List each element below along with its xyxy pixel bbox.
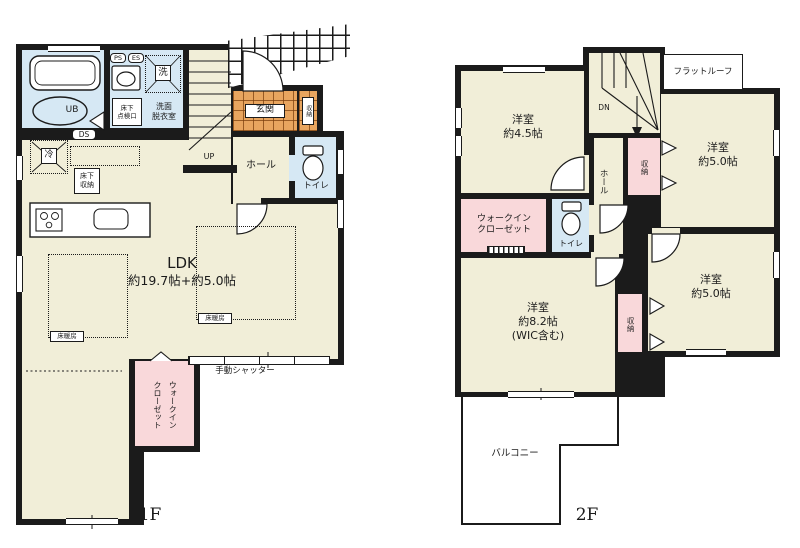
label-room-se: 洋室 約5.0帖 (655, 272, 767, 302)
label-hall-1f: ホール (237, 160, 285, 173)
door-opening (289, 155, 295, 181)
window (48, 45, 100, 52)
wall-strip (183, 165, 237, 173)
floorplan-canvas: UB PS ES 洗 床下 点検口 洗面 脱衣室 DS 冷 床下 収納 UP 玄… (0, 0, 800, 548)
door-opening (589, 205, 594, 235)
label-underfloor: 床下 収納 (74, 168, 100, 194)
window (16, 256, 23, 292)
label-floor-heating: 床暖房 (50, 331, 84, 342)
window (337, 200, 344, 228)
floor-title-1f: 1F (131, 506, 169, 526)
label-ds: DS (72, 129, 96, 140)
label-floor-heating: 床暖房 (198, 313, 232, 324)
window (337, 150, 344, 174)
door-opening (233, 196, 261, 204)
label-ldk-title: LDK (92, 254, 272, 272)
label-laundry: 洗 (155, 65, 171, 81)
label-entrance: 玄関 (245, 104, 285, 118)
window (16, 156, 23, 180)
label-dn: DN (592, 103, 616, 113)
label-ps: PS (110, 53, 126, 63)
label-flat-roof: フラットルーフ (663, 64, 743, 80)
room-ldk-annex (22, 352, 129, 519)
window (503, 66, 545, 73)
label-ldk-size: 約19.7帖+約5.0帖 (92, 273, 272, 288)
label-ub: UB (58, 104, 86, 118)
closet-sliding-door (487, 246, 525, 254)
label-side-closet: 収納 (622, 305, 638, 343)
window (455, 108, 462, 128)
label-room-ne: 洋室 約5.0帖 (665, 140, 771, 170)
label-stair-closet: 収納 (636, 148, 652, 186)
window (773, 252, 780, 278)
label-room-nw: 洋室 約4.5帖 (471, 112, 575, 142)
stairs-2f (589, 53, 660, 133)
label-fridge: 冷 (41, 148, 57, 164)
label-balcony: バルコニー (477, 447, 553, 460)
label-wic-1f: ウォークイン クローゼット (145, 370, 185, 440)
label-toilet-2f: トイレ (553, 238, 589, 249)
window (508, 391, 574, 398)
label-es: ES (128, 53, 144, 63)
entrance-porch-tiles (228, 24, 350, 88)
label-wic-2f: ウォークイン クローゼット (462, 212, 546, 238)
floor-title-2f: 2F (568, 506, 606, 526)
label-inspection: 床下 点検口 (112, 98, 142, 126)
label-washroom: 洗面 脱衣室 (144, 98, 184, 126)
shutter-window (188, 356, 330, 365)
label-room-main: 洋室 約8.2帖 (WIC含む) (478, 300, 598, 344)
pantry-space (70, 146, 140, 166)
door-opening (652, 228, 680, 234)
label-toilet-1f: トイレ (296, 181, 336, 192)
door-opening (591, 252, 619, 258)
door-opening (584, 155, 589, 193)
label-shutter: 手動シャッター (203, 366, 287, 377)
window (773, 130, 780, 156)
window (66, 518, 118, 525)
window (686, 349, 726, 356)
label-up: UP (194, 151, 224, 162)
label-entrance-storage: 収納 (302, 97, 314, 125)
window (455, 136, 462, 156)
label-hall-2f: ホール (596, 156, 610, 208)
